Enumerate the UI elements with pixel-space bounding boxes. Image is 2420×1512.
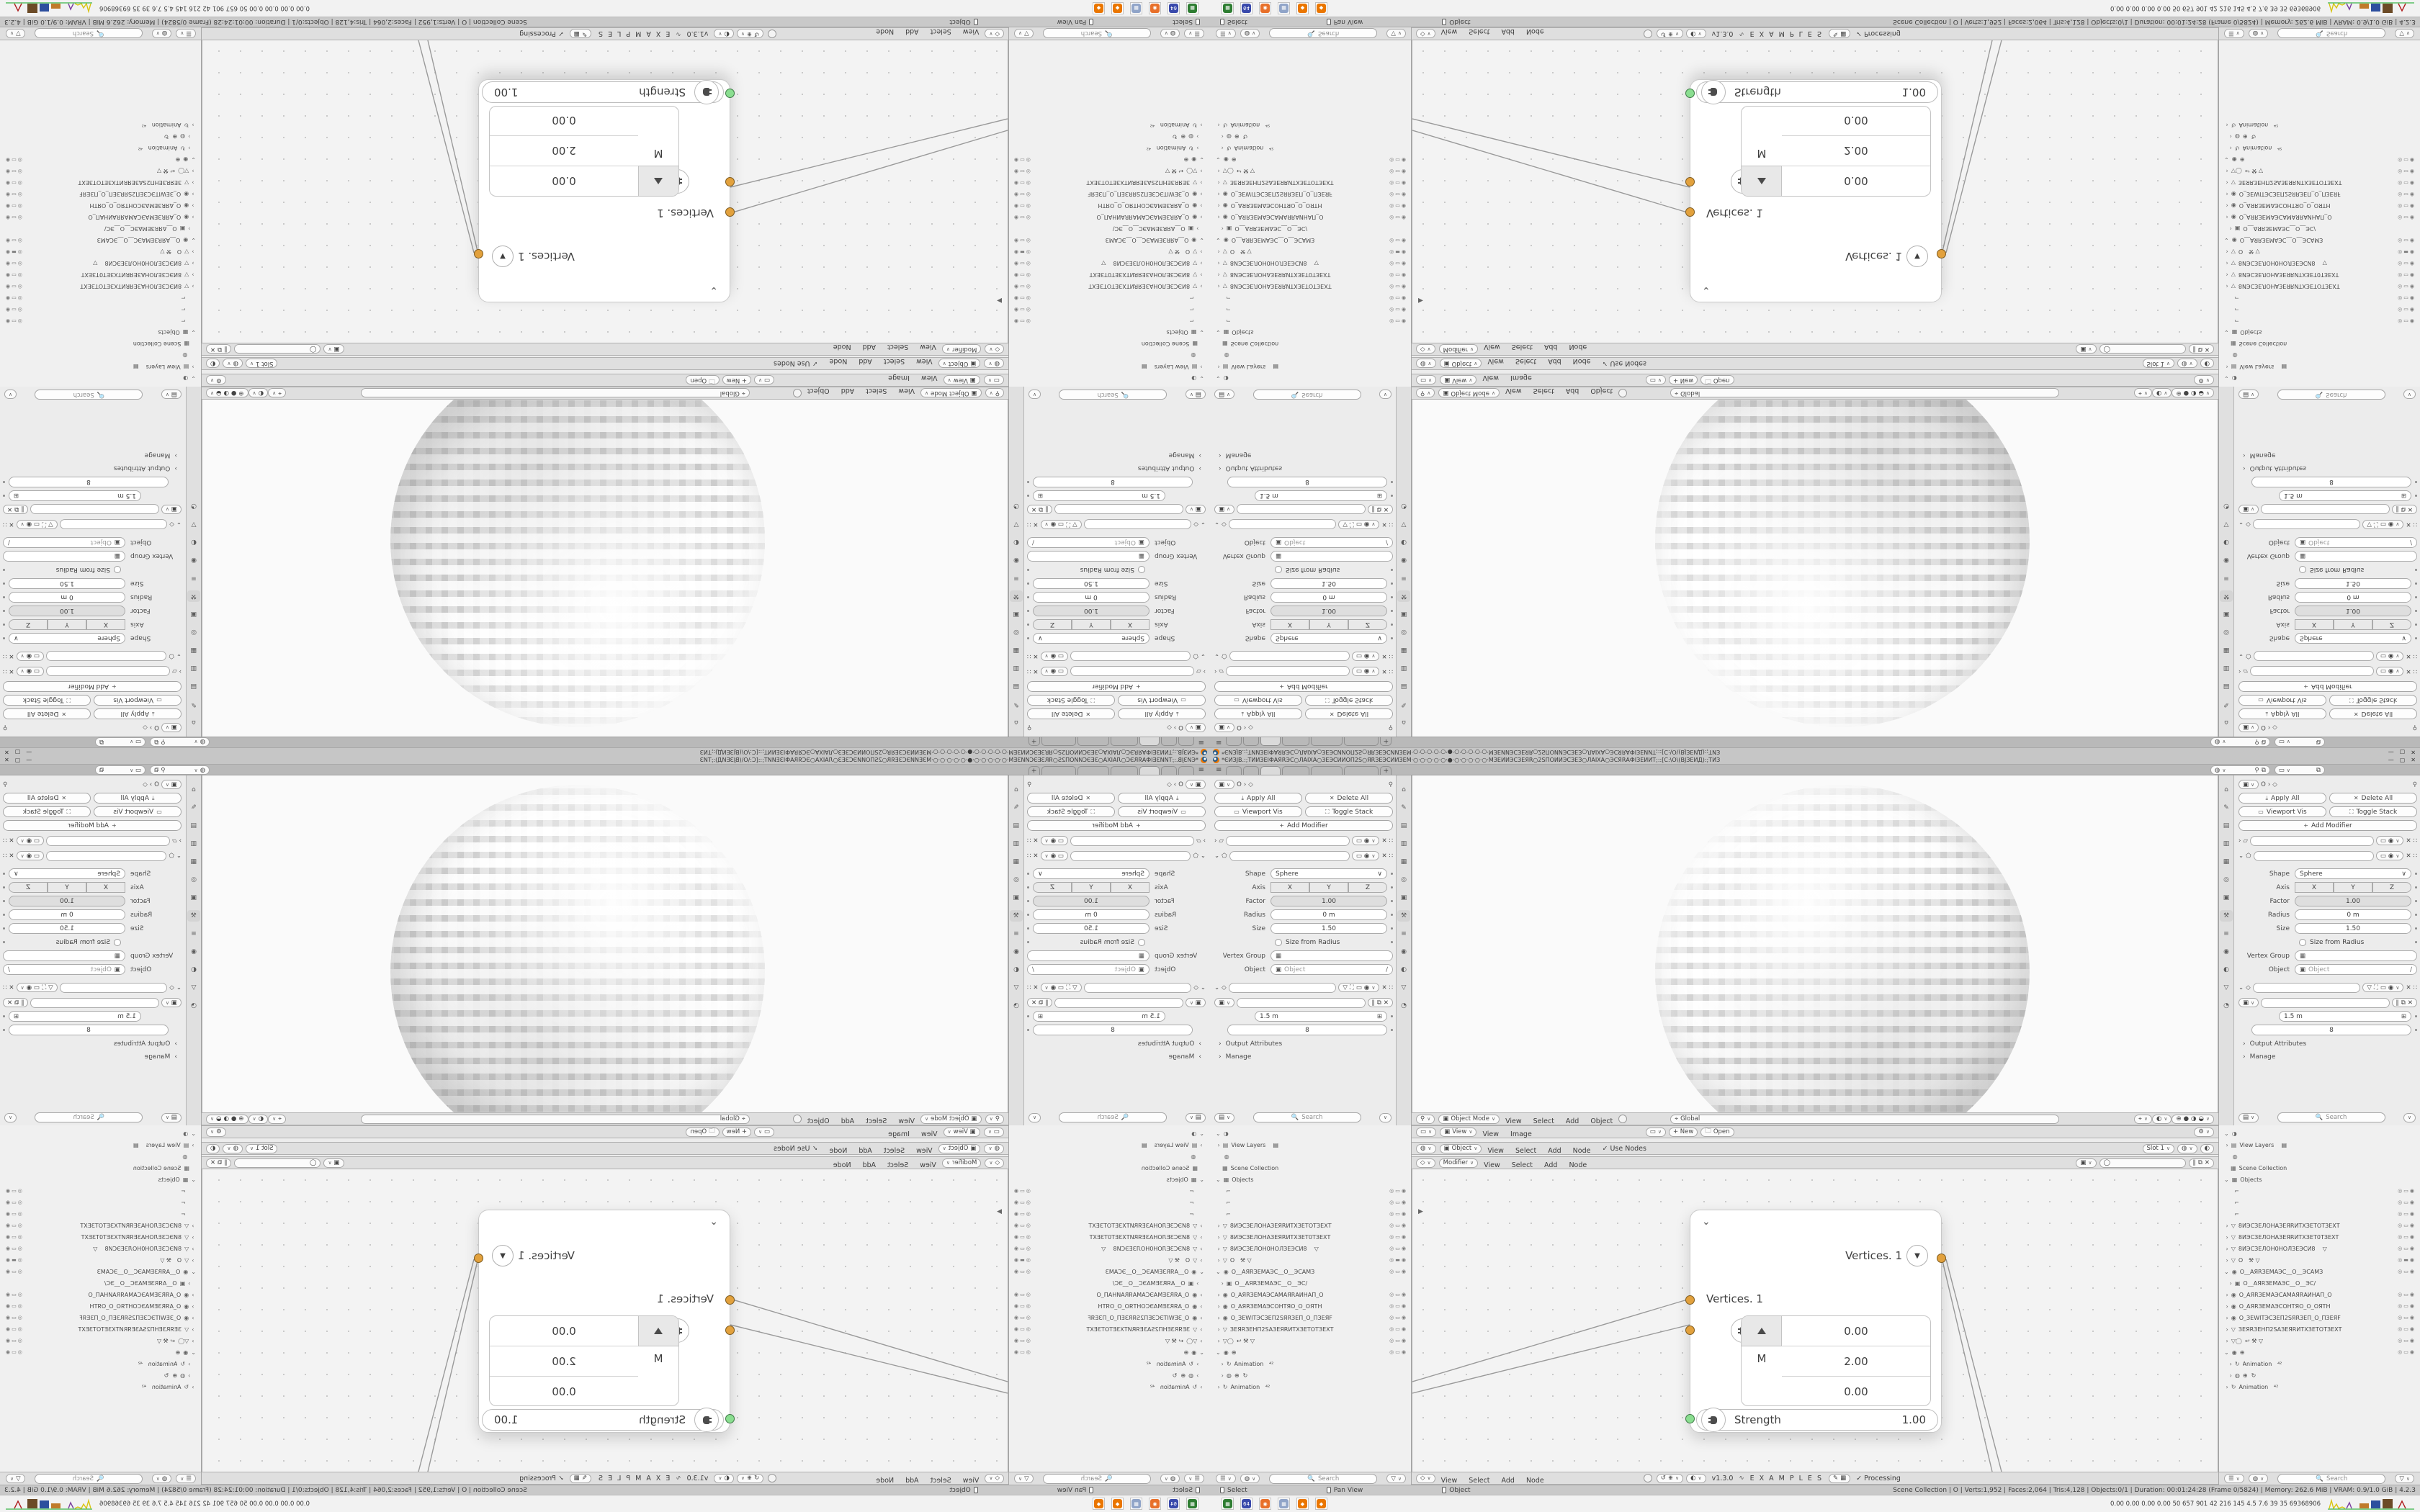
properties-tab-icon[interactable]: ▤ xyxy=(1010,820,1023,832)
visibility-toggle-icons[interactable]: ◎▭◉ xyxy=(4,261,22,266)
outliner-row[interactable]: › ▽◯ ↩ ⚒ ▽ ◎▭◉ xyxy=(0,166,202,177)
outliner-row[interactable]: › ▽ 8ИЭСЗЕЛОНАЗЕЯRИТХЗЕТ0ТЗЕХТ ◎▭◉ xyxy=(2218,1231,2420,1243)
outliner-row[interactable]: ⌄ ◉ ⊕ ◎▭◉ xyxy=(1210,154,1412,166)
disclosure-chevron-icon[interactable]: › xyxy=(1196,1280,1204,1287)
vector-stepper[interactable] xyxy=(638,1316,678,1346)
vector-x-field[interactable]: 0.00 xyxy=(1782,1316,1930,1346)
modifier-visibility-toggles[interactable]: ▭◉∨ xyxy=(1041,652,1069,661)
disclosure-chevron-icon[interactable]: ⌄ xyxy=(1199,376,1204,382)
size-from-radius-checkbox[interactable] xyxy=(114,939,121,946)
properties-tab-icon[interactable]: ▣ xyxy=(1397,892,1410,904)
outliner-row[interactable]: › ▽ 8ИЭСЗЕЛОНАЗЕЯRИТХЗЕТОТЗЕХТ ◎▭◉ xyxy=(0,1220,202,1231)
menu-hamburger-icon[interactable]: ≡ xyxy=(1198,767,1204,774)
delete-all-button[interactable]: ✕Delete All xyxy=(1305,793,1393,804)
outliner-row[interactable]: ⌄ ▦ Objects xyxy=(0,327,202,338)
area-divider[interactable] xyxy=(1411,27,1412,737)
disclosure-chevron-icon[interactable] xyxy=(1216,341,1219,348)
outliner-row[interactable]: › ▽ 8ИЭСЗЕЛОН0НОЛЗЕЭСИ8 ▽ ◎▭◉ xyxy=(0,1243,202,1254)
disclosure-chevron-icon[interactable] xyxy=(1216,353,1222,359)
expand-chevron-icon[interactable]: › xyxy=(179,837,181,845)
editor-type-button[interactable]: ▭∨ xyxy=(984,1128,1004,1137)
collapse-chevron-icon[interactable]: ⌄ xyxy=(176,984,181,991)
open-image-button[interactable]: 🗀Open xyxy=(686,376,719,385)
outliner-item-name[interactable]: 8ИЭСЗЕЛОНАЗЕЯRИТХЗЕТ0ТЗЕХТ xyxy=(1230,272,1389,279)
close-icon[interactable]: ✕ xyxy=(1033,653,1038,660)
animate-dot[interactable] xyxy=(3,624,5,626)
properties-tab-icon[interactable]: ▤ xyxy=(187,680,200,692)
options-button[interactable]: ∨ xyxy=(4,390,17,400)
taskbar-app-button[interactable]: ▦ xyxy=(1222,2,1234,14)
node-group-row[interactable]: ▣∨ ∥⧉✕ xyxy=(1214,503,1393,516)
shader-target-select[interactable]: ▣Object∨ xyxy=(1440,1144,1482,1153)
disclosure-chevron-icon[interactable]: ⌄ xyxy=(1199,1269,1204,1275)
output-attributes-section[interactable]: ›Output Attributes xyxy=(1219,1039,1393,1049)
properties-tab-icon[interactable]: ▣ xyxy=(187,892,200,904)
object-field[interactable]: ▣Object∕ xyxy=(2295,964,2417,975)
visibility-toggle-icons[interactable]: ◎▭◉ xyxy=(1013,295,1031,301)
viewport-vis-button[interactable]: ▭Viewport Vis xyxy=(2238,695,2326,706)
editor-type-button[interactable]: ◇∨ xyxy=(1416,1158,1435,1168)
drag-handle-icon[interactable]: ∷ xyxy=(3,521,6,528)
disclosure-chevron-icon[interactable]: › xyxy=(1216,261,1220,267)
shader-target-select[interactable]: ▣Object∨ xyxy=(1440,359,1482,369)
tools-pair-button[interactable]: ✎▦ xyxy=(1829,30,1850,39)
node-group-actions[interactable]: ∥⧉✕ xyxy=(2392,998,2417,1007)
outliner-item-name[interactable]: ЗЕЯRЗЕНП2SАЗЕЯRИТХЗЕТОТЗЕХТ xyxy=(1230,180,1389,186)
disclosure-chevron-icon[interactable] xyxy=(1216,1200,1223,1206)
window-control-button[interactable]: ▢ xyxy=(15,749,21,755)
shape-select[interactable]: Sphere∨ xyxy=(1270,633,1387,644)
outliner-row[interactable]: › ↻ Animation ⁴² xyxy=(1008,1358,1210,1369)
disclosure-chevron-icon[interactable]: › xyxy=(192,1303,196,1310)
nodes-modifier-entry[interactable]: ⌄◇ ▽⛶▭◉∨ ✕∷ xyxy=(1214,518,1393,531)
breadcrumb-object-selector[interactable]: ▣∨ xyxy=(1186,780,1206,789)
apply-all-button[interactable]: ⤓Apply All xyxy=(94,708,181,719)
modifier-visibility-toggles[interactable]: ▭◉∨ xyxy=(2376,652,2404,661)
taskbar-app-button[interactable]: ▦ xyxy=(1130,1498,1142,1510)
disclosure-chevron-icon[interactable]: › xyxy=(2224,192,2228,198)
factor-slider[interactable]: 1.00 xyxy=(1033,606,1149,616)
properties-tab-icon[interactable]: ⌂ xyxy=(1397,784,1410,796)
outliner-item-name[interactable]: O_AЯRЗЕМАЭСАМАЯRАИНАП_O xyxy=(22,1292,181,1298)
properties-tab-icon[interactable]: ⌂ xyxy=(1010,784,1023,796)
image-view-mode-select[interactable]: ▣View∨ xyxy=(1440,1128,1476,1137)
visibility-toggle-icons[interactable]: ◎▭◉ xyxy=(4,1326,22,1332)
viewport-vis-button[interactable]: ▭Viewport Vis xyxy=(94,806,181,817)
vertices-node[interactable]: ⌄ Vertices. 1 ▼ Vertices. 1 0.00 M 2.00 … xyxy=(478,1210,730,1433)
axis-option[interactable]: X xyxy=(2295,619,2334,630)
vertex-group-field[interactable]: ▦ xyxy=(1027,551,1149,562)
workspace-tab[interactable] xyxy=(1243,737,1259,746)
add-workspace-button[interactable]: + xyxy=(1380,766,1391,775)
workspace-tab[interactable] xyxy=(1161,766,1177,775)
disclosure-chevron-icon[interactable]: › xyxy=(1200,215,1204,221)
visibility-toggle-icons[interactable]: ◎▬◉ xyxy=(2398,1257,2416,1263)
window-title-bar[interactable]: * ЄИЗЈВ.:;ТИИЗЕІФАЯRЭС○ЛАІХА○ЗЕЭСИИОП2S○… xyxy=(1210,747,2420,756)
visibility-toggle-icons[interactable]: ◎▭◉ xyxy=(1389,1211,1407,1217)
properties-tab-icon[interactable]: ⚒ xyxy=(2220,590,2233,602)
properties-tab-icon[interactable]: ◉ xyxy=(2220,946,2233,958)
outliner-row[interactable]: › ▽ ЗЕЯRЗЕНП2SАЗЕЯRИТХЗЕТОТЗЕХТ ◎▭◉ xyxy=(1008,1323,1210,1335)
visibility-toggle-icons[interactable]: ◎▭◉ xyxy=(4,1246,22,1251)
animate-dot[interactable] xyxy=(3,927,5,930)
disclosure-chevron-icon[interactable]: › xyxy=(2224,134,2232,140)
outliner-item-name[interactable]: ⊕ ↻ xyxy=(4,1372,177,1379)
taskbar-app-button[interactable]: ◆ xyxy=(1093,1498,1105,1510)
visibility-toggle-icons[interactable]: ◎▭◉ xyxy=(1389,157,1407,163)
menu-item[interactable]: Select xyxy=(930,1477,951,1485)
visibility-toggle-icons[interactable]: ◎▭◉ xyxy=(2398,261,2416,266)
workspace-tab[interactable] xyxy=(1311,737,1343,746)
outliner-row[interactable]: › ▽ O ⚒ ▽ ◎▬◉ xyxy=(1210,1254,1412,1266)
disclosure-chevron-icon[interactable]: › xyxy=(1200,1292,1204,1298)
outliner-row[interactable]: ▦ Scene Collection xyxy=(0,338,202,350)
disclosure-chevron-icon[interactable]: ⌄ xyxy=(1216,157,1221,163)
properties-tab-icon[interactable]: ▥ xyxy=(2220,838,2233,850)
outliner-row[interactable]: › ◉ O_AЯRЗЕМАЭСАМАЯRАИНАП_O ◎▭◉ xyxy=(0,1289,202,1300)
outliner-row[interactable]: › ↻ Animation ⁴² xyxy=(0,120,202,131)
shading-mode-buttons[interactable]: ⊕●◑◒∨ xyxy=(206,389,248,398)
modifier-visibility-toggles[interactable]: ▭◉∨ xyxy=(1352,652,1380,661)
node-group-actions[interactable]: ∥⧉✕ xyxy=(1368,998,1393,1007)
size-from-radius-checkbox[interactable] xyxy=(114,567,121,574)
window-control-button[interactable]: ✕ xyxy=(2411,749,2416,755)
strength-value[interactable]: 1.00 xyxy=(1902,1413,1926,1426)
animate-dot[interactable] xyxy=(1027,582,1029,585)
menu-item[interactable]: Object xyxy=(807,1117,830,1125)
menu-hamburger-icon[interactable]: ≡ xyxy=(1216,738,1222,745)
animate-dot[interactable] xyxy=(3,914,5,916)
editor-type-button[interactable]: ◇∨ xyxy=(1416,1474,1435,1483)
close-icon[interactable]: ✕ xyxy=(1381,653,1386,660)
outliner-item-name[interactable]: O_AЯRЗЕМАЭСАМАЯRАИНАП_O xyxy=(22,215,181,221)
close-icon[interactable]: ✕ xyxy=(9,521,14,528)
image-browse-select[interactable]: ▭∨ xyxy=(1646,1128,1666,1137)
outliner-row[interactable]: › ▣ O__AЯRЗЕМАЭС__O__ЭС/ xyxy=(1210,223,1412,235)
menu-item[interactable]: View xyxy=(963,1477,980,1485)
eyedropper-icon[interactable]: ∕ xyxy=(8,966,10,973)
disclosure-chevron-icon[interactable]: › xyxy=(1216,122,1220,129)
disclosure-chevron-icon[interactable]: › xyxy=(2224,226,2232,233)
modifier-entry[interactable]: ›▱ ▭◉∨ ✕∷ xyxy=(1214,834,1393,847)
visibility-toggle-icons[interactable]: ◎▭◉ xyxy=(4,1349,22,1355)
visibility-toggle-icons[interactable]: ◎▭◉ xyxy=(2398,1303,2416,1309)
axis-option[interactable]: Y xyxy=(2334,619,2372,630)
pin-icon[interactable]: ⚲ xyxy=(1027,724,1031,732)
properties-tab-icon[interactable]: ▥ xyxy=(1397,838,1410,850)
breadcrumb-object-selector[interactable]: ▣∨ xyxy=(1214,780,1234,789)
node-group-name-field[interactable]: ◯ xyxy=(2099,345,2186,354)
outliner-item-name[interactable]: O__AЯRЗЕМАЭС__O__ЭСАМЗ xyxy=(1031,238,1188,244)
properties-tab-icon[interactable]: ⌂ xyxy=(187,716,200,728)
add-modifier-button[interactable]: +Add Modifier xyxy=(1027,681,1206,692)
menu-item[interactable]: View xyxy=(916,358,933,366)
disclosure-chevron-icon[interactable]: › xyxy=(1216,1223,1220,1229)
disclosure-chevron-icon[interactable] xyxy=(2224,1200,2231,1206)
animate-dot[interactable] xyxy=(3,1015,5,1017)
outliner-row[interactable]: ⌄ ▦ Objects xyxy=(1008,1174,1210,1185)
id-browse-field[interactable]: ◍∨⚲⧉ xyxy=(2210,737,2270,747)
editor-type-button[interactable]: ▤∨ xyxy=(1186,1113,1206,1122)
disclosure-chevron-icon[interactable] xyxy=(192,341,196,348)
object-field[interactable]: ▣Object∕ xyxy=(1027,537,1149,548)
properties-tab-icon[interactable]: ◎ xyxy=(1397,874,1410,886)
menu-item[interactable]: View xyxy=(898,387,915,395)
animate-dot[interactable] xyxy=(3,941,5,943)
spacing-field[interactable]: 1.5 m⊞ xyxy=(2279,1011,2411,1022)
modifier-entry[interactable]: ⌄⬠ ▭◉∨ ✕∷ xyxy=(2238,850,2417,862)
outliner-row[interactable]: › ◉ O_AЯRЗЕМАЭСОНТЯО_O_ОЯТН ◎▭◉ xyxy=(0,1300,202,1312)
outliner-row[interactable]: ⌐ ◎▭◉ xyxy=(1008,1185,1210,1197)
menu-item[interactable]: View xyxy=(921,374,938,382)
nodes-modifier-entry[interactable]: ⌄◇ ▽⛶▭◉∨ ✕∷ xyxy=(3,518,181,531)
axis-option[interactable]: Z xyxy=(1348,619,1387,630)
node-tree-selector[interactable]: ▣∨ xyxy=(1214,505,1234,514)
disclosure-chevron-icon[interactable]: › xyxy=(1200,1338,1204,1344)
outliner-row[interactable]: › ◉ O_ЗЕWІТЭСЗЕП2SЯRЗЕП_O_ПЗЕЯF ◎▭◉ xyxy=(1210,189,1412,200)
tool-circle[interactable] xyxy=(1644,30,1652,38)
disclosure-chevron-icon[interactable]: › xyxy=(1216,249,1220,256)
menu-item[interactable]: Node xyxy=(876,1477,894,1485)
outliner-row[interactable]: › ◉ O_AЯRЗЕМАЭСАМАЯRАИНАП_O ◎▭◉ xyxy=(0,212,202,223)
visibility-toggle-icons[interactable]: ◎▭◉ xyxy=(1013,215,1031,220)
properties-tab-icon[interactable]: ◎ xyxy=(1010,626,1023,638)
link-icon[interactable]: ⊞ xyxy=(1377,1013,1382,1020)
shape-select[interactable]: Sphere∨ xyxy=(9,868,125,879)
outliner-row[interactable]: ◍ xyxy=(0,1151,202,1162)
expand-chevron-icon[interactable]: › xyxy=(2238,837,2241,845)
disclosure-chevron-icon[interactable] xyxy=(1216,1188,1223,1194)
axis-option[interactable]: Y xyxy=(1309,619,1348,630)
manage-section[interactable]: ›Manage xyxy=(1027,1052,1201,1062)
outliner-row[interactable]: ⌐ ◎▭◉ xyxy=(1008,1208,1210,1220)
properties-tab-icon[interactable]: ≡ xyxy=(187,572,200,584)
link-icon[interactable]: ⊞ xyxy=(14,1013,19,1020)
properties-tab-icon[interactable]: ◔ xyxy=(1397,1000,1410,1012)
outliner-row[interactable]: › ▽ O ⚒ ▽ ◎▬◉ xyxy=(1008,1254,1210,1266)
outliner-item-name[interactable]: 8ИЭСЗЕЛОН0НОЛЗЕЭСИ8 ▽ xyxy=(22,261,181,267)
visibility-toggle-icons[interactable]: ◎▭◉ xyxy=(1013,1349,1031,1355)
properties-tab-icon[interactable]: ◐ xyxy=(187,964,200,976)
disclosure-chevron-icon[interactable]: › xyxy=(1216,364,1220,371)
toggle-stack-button[interactable]: ⛶Toggle Stack xyxy=(3,806,91,817)
transform-orientation-field[interactable]: ⌖Global xyxy=(1670,389,2059,398)
disclosure-chevron-icon[interactable]: › xyxy=(1216,1303,1220,1310)
disclosure-chevron-icon[interactable]: ⌄ xyxy=(2224,1176,2229,1183)
outliner-item-name[interactable]: O__AЯRЗЕМАЭС__O__ЭСАМЗ xyxy=(2240,238,2398,244)
disclosure-chevron-icon[interactable]: › xyxy=(1196,1372,1204,1379)
visibility-toggle-icons[interactable]: ◎▭◉ xyxy=(1013,1326,1031,1332)
editor-type-button[interactable]: ▭∨ xyxy=(1416,1128,1436,1137)
properties-tab-icon[interactable]: ▦ xyxy=(1010,856,1023,868)
outliner-row[interactable]: ⌄ ◉ ⊕ ◎▭◉ xyxy=(1008,154,1210,166)
visibility-toggle-icons[interactable]: ◎▭◉ xyxy=(2398,180,2416,186)
outliner-row[interactable]: › ▤ View Layers ▤ xyxy=(0,1139,202,1151)
node-collapse-icon[interactable]: ⌄ xyxy=(1702,1216,1711,1228)
disclosure-chevron-icon[interactable]: › xyxy=(1216,168,1220,175)
outliner-item-name[interactable]: 8ИЭСЗЕЛОНАЗЕЯRИТХЗЕТОТЗЕХТ xyxy=(1031,1223,1190,1229)
properties-tab-icon[interactable]: ≡ xyxy=(187,928,200,940)
use-nodes-checkbox[interactable]: ✓ Use Nodes xyxy=(774,360,818,368)
viewport-vis-button[interactable]: ▭Viewport Vis xyxy=(1214,806,1302,817)
menu-item[interactable]: View xyxy=(1505,1117,1522,1125)
outliner-item-name[interactable]: ЗЕЯRЗЕНП2SАЗЕЯRИТХЗЕТОТЗЕХТ xyxy=(1031,1326,1190,1333)
vector-z-field[interactable]: 0.00 xyxy=(490,1377,638,1406)
outliner-item-name[interactable]: Animation ⁴² xyxy=(1230,122,1407,129)
close-icon[interactable]: ✕ xyxy=(9,837,14,845)
disclosure-chevron-icon[interactable]: ⌄ xyxy=(191,1349,196,1356)
taskbar-app-button[interactable]: ◉ xyxy=(1149,2,1161,14)
id-browse-field[interactable]: ▭∨⧉ xyxy=(95,737,145,747)
collapse-chevron-icon[interactable]: ⌄ xyxy=(1214,852,1219,860)
strength-field[interactable]: Strength 1.00 xyxy=(482,1409,724,1431)
editor-type-button[interactable]: ⚲∨ xyxy=(985,1115,1004,1124)
properties-tab-icon[interactable]: ▥ xyxy=(1397,662,1410,674)
animate-dot[interactable] xyxy=(1027,900,1029,902)
pin-icon[interactable]: ⚲ xyxy=(3,781,7,788)
properties-tab-icon[interactable]: ⚒ xyxy=(2220,910,2233,922)
close-icon[interactable]: ✕ xyxy=(2406,521,2411,528)
input-socket-vertices[interactable] xyxy=(725,207,735,217)
toggle-stack-button[interactable]: ⛶Toggle Stack xyxy=(1305,806,1393,817)
outliner-item-name[interactable]: ⊕ ↻ xyxy=(1234,1372,1407,1379)
outliner-row[interactable]: › ↻ Animation ⁴² xyxy=(2218,1381,2420,1392)
outliner-row[interactable]: › ▽ O ⚒ ▽ ◎▬◉ xyxy=(1210,246,1412,258)
visibility-toggle-icons[interactable]: ◎▭◉ xyxy=(1389,1188,1407,1194)
disclosure-chevron-icon[interactable] xyxy=(2224,295,2231,302)
radius-field[interactable]: 0 m xyxy=(1270,592,1387,603)
properties-tab-icon[interactable]: ⚒ xyxy=(1397,910,1410,922)
animate-dot[interactable] xyxy=(2415,495,2417,497)
outliner-item-name[interactable]: 8ИЭСЗЕЛОН0НОЛЗЕЭСИ8 ▽ xyxy=(1230,1246,1389,1252)
disclosure-chevron-icon[interactable]: › xyxy=(1216,215,1220,221)
drag-handle-icon[interactable]: ∷ xyxy=(1389,837,1393,845)
close-icon[interactable]: ✕ xyxy=(1381,837,1386,845)
outliner-row[interactable]: › ◉ O_AЯRЗЕМАЭСАМАЯRАИНАП_O ◎▭◉ xyxy=(1008,212,1210,223)
window-control-button[interactable]: ▢ xyxy=(2400,749,2406,755)
workspace-tab[interactable] xyxy=(1226,737,1242,746)
radius-field[interactable]: 0 m xyxy=(2295,909,2411,920)
expand-chevron-icon[interactable]: › xyxy=(1204,668,1206,675)
outliner-item-name[interactable]: 8ИЭСЗЕЛОНАЗЕЯRИТХЗЕТ0ТЗЕХТ xyxy=(2238,1234,2398,1241)
menu-item[interactable]: View xyxy=(1441,1477,1458,1485)
outliner-item-name[interactable]: O_AЯRЗЕМАЭСАМАЯRАИНАП_O xyxy=(1031,1292,1189,1298)
properties-tab-icon[interactable]: ▦ xyxy=(187,644,200,656)
outliner-row[interactable]: › ↻ Animation ⁴² xyxy=(1008,143,1210,154)
modifier-visibility-toggles[interactable]: ▭◉∨ xyxy=(17,652,45,661)
animate-dot[interactable] xyxy=(3,596,5,598)
menu-item[interactable]: Add xyxy=(905,1477,918,1485)
visibility-toggle-icons[interactable]: ◎▭◉ xyxy=(2398,168,2416,174)
outliner-item-name[interactable]: O ⚒ ▽ xyxy=(2238,249,2398,256)
disclosure-chevron-icon[interactable]: › xyxy=(1200,1303,1204,1310)
workspace-tab[interactable] xyxy=(1111,737,1138,746)
proportional-edit-button[interactable]: ◐∨ xyxy=(714,30,734,39)
drag-handle-icon[interactable]: ∷ xyxy=(1389,984,1393,991)
use-nodes-checkbox[interactable]: ✓ Use Nodes xyxy=(1602,360,1646,368)
visibility-toggle-icons[interactable]: ◎▭◉ xyxy=(1013,1211,1031,1217)
outliner-item-name[interactable]: O__AЯRЗЕМАЭС__O__ЭС/ xyxy=(1234,226,1407,233)
node-dropdown-button[interactable]: ▼ xyxy=(1906,1245,1928,1266)
animate-dot[interactable] xyxy=(1391,927,1393,930)
snap-magnet-button[interactable]: ⌖∨ xyxy=(2134,389,2152,398)
disclosure-chevron-icon[interactable]: › xyxy=(1216,1292,1220,1298)
outliner-item-name[interactable]: O_AЯRЗЕМАЭСОНТЯО_O_ОЯТН xyxy=(1231,203,1389,210)
visibility-toggle-icons[interactable]: ◎▭◉ xyxy=(1013,1269,1031,1274)
outliner-row[interactable]: ⌄ ◑ xyxy=(1008,373,1210,384)
manage-section[interactable]: ›Manage xyxy=(3,450,177,460)
taskbar-app-button[interactable]: ▦ xyxy=(1130,2,1142,14)
filter-button[interactable]: ▽∨ xyxy=(1386,29,1406,38)
image-browse-select[interactable]: ▭∨ xyxy=(1646,376,1666,385)
spacing-field[interactable]: 1.5 m⊞ xyxy=(1033,1011,1165,1022)
outliner-row[interactable]: › ↻ Animation ⁴² xyxy=(1008,120,1210,131)
disclosure-chevron-icon[interactable]: ⌄ xyxy=(2224,238,2229,244)
close-icon[interactable]: ✕ xyxy=(2406,668,2411,675)
apply-all-button[interactable]: ⤓Apply All xyxy=(2238,793,2326,804)
menu-item[interactable]: View xyxy=(898,1117,915,1125)
examples-button[interactable]: E X A M P L E S xyxy=(597,30,670,38)
strength-field[interactable]: Strength 1.00 xyxy=(1696,81,1938,103)
mode-toggle-circle[interactable] xyxy=(793,389,802,397)
disclosure-chevron-icon[interactable]: ⌄ xyxy=(2224,330,2229,336)
disclosure-chevron-icon[interactable]: ⌄ xyxy=(2224,1269,2229,1275)
factor-slider[interactable]: 1.00 xyxy=(2295,606,2411,616)
vector-z-field[interactable]: 0.00 xyxy=(1782,106,1930,135)
visibility-toggle-icons[interactable]: ◎▭◉ xyxy=(4,180,22,186)
visibility-toggle-icons[interactable]: ◎▭◉ xyxy=(1389,1246,1407,1251)
outliner-item-name[interactable]: ЗЕЯRЗЕНП2SАЗЕЯRИТХЗЕТОТЗЕХТ xyxy=(2238,1326,2398,1333)
outliner-row[interactable]: › ◉ O_AЯRЗЕМАЭСАМАЯRАИНАП_O ◎▭◉ xyxy=(1210,1289,1412,1300)
taskbar-app-button[interactable]: 64 xyxy=(1168,2,1180,14)
outliner-item-name[interactable]: ⊕ ↻ xyxy=(2243,134,2416,140)
add-workspace-button[interactable]: + xyxy=(1380,737,1391,746)
breadcrumb-object-selector[interactable]: ▣∨ xyxy=(161,780,181,789)
collapse-chevron-icon[interactable]: ⌄ xyxy=(1201,521,1206,528)
disclosure-chevron-icon[interactable]: ⌄ xyxy=(1199,330,1204,336)
visibility-toggle-icons[interactable]: ◎▬◉ xyxy=(1389,249,1407,255)
properties-tab-icon[interactable]: ◐ xyxy=(2220,536,2233,548)
animate-dot[interactable] xyxy=(3,481,5,483)
drag-handle-icon[interactable]: ∷ xyxy=(2414,668,2417,675)
modifier-name-field[interactable] xyxy=(46,652,166,662)
visibility-toggle-icons[interactable]: ◎▭◉ xyxy=(4,1269,22,1274)
outliner-item-name[interactable]: 8ИЭСЗЕЛОН0НОЛЗЕЭСИ8 ▽ xyxy=(1031,1246,1190,1252)
outliner-row[interactable]: › ▽ 8ИЭСЗЕЛОН0НОЛЗЕЭСИ8 ▽ ◎▭◉ xyxy=(1008,1243,1210,1254)
animate-dot[interactable] xyxy=(1391,873,1393,875)
visibility-toggle-icons[interactable]: ◎▭◉ xyxy=(1389,1326,1407,1332)
modifier-visibility-toggles[interactable]: ▭◉∨ xyxy=(1041,851,1069,860)
toggle-stack-button[interactable]: ⛶Toggle Stack xyxy=(2329,695,2417,706)
workspace-tab[interactable] xyxy=(1260,737,1281,746)
link-icon[interactable]: ⊞ xyxy=(1038,492,1043,500)
outliner-row[interactable]: › ◍ ⊕ ↻ xyxy=(1210,1369,1412,1381)
modifier-name-field[interactable] xyxy=(46,851,166,861)
disclosure-chevron-icon[interactable] xyxy=(1201,1165,1204,1171)
outliner-row[interactable]: › ▽◯ ↩ ⚒ ▽ ◎▭◉ xyxy=(0,1335,202,1346)
modifier-entry[interactable]: ›▱ ▭◉∨ ✕∷ xyxy=(3,834,181,847)
properties-tab-icon[interactable]: ▤ xyxy=(1397,680,1410,692)
proportional-edit-button[interactable]: ◐∨ xyxy=(1686,1474,1706,1483)
overlays-button[interactable]: ◐∨ xyxy=(248,1115,269,1124)
outliner-row[interactable]: ▦ Scene Collection xyxy=(2218,1162,2420,1174)
spacing-field[interactable]: 1.5 m⊞ xyxy=(1033,490,1165,501)
tools-pair-button[interactable]: ✎▦ xyxy=(570,1474,591,1483)
visibility-toggle-icons[interactable]: ◎▭◉ xyxy=(2398,307,2416,312)
disclosure-chevron-icon[interactable]: › xyxy=(1200,1246,1204,1252)
outliner-item-name[interactable]: O__AЯRЗЕМАЭС__O__ЭС/ xyxy=(1234,1280,1407,1287)
visibility-toggle-icons[interactable]: ◎▭◉ xyxy=(1013,192,1031,197)
